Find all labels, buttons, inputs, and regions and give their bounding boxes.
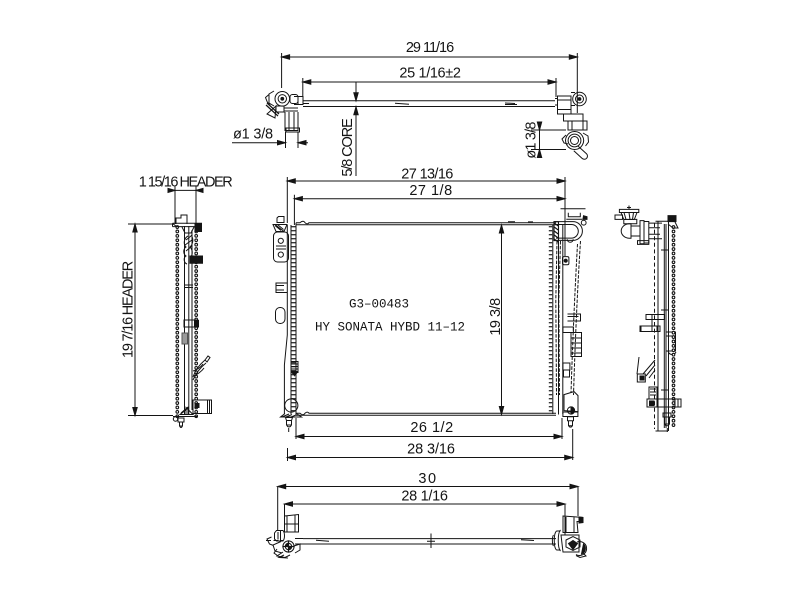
svg-text:29 11/16: 29 11/16	[406, 40, 454, 56]
svg-text:30: 30	[418, 471, 437, 487]
svg-text:25 1/16±2: 25 1/16±2	[399, 66, 460, 82]
svg-text:28 3/16: 28 3/16	[407, 442, 455, 458]
svg-text:HY SONATA HYBD 11–12: HY SONATA HYBD 11–12	[315, 321, 465, 335]
svg-text:27 13/16: 27 13/16	[401, 167, 453, 183]
svg-text:27 1/8: 27 1/8	[409, 183, 452, 199]
svg-text:G3–00483: G3–00483	[349, 298, 409, 312]
svg-text:5/8 CORE: 5/8 CORE	[340, 118, 356, 177]
svg-text:ø1 3/8: ø1 3/8	[233, 127, 273, 143]
svg-text:19 7/16 HEADER: 19 7/16 HEADER	[121, 261, 137, 358]
svg-text:28 1/16: 28 1/16	[401, 489, 448, 505]
svg-text:26 1/2: 26 1/2	[410, 420, 453, 436]
svg-text:ø1 3/8: ø1 3/8	[524, 122, 540, 159]
svg-text:1 15/16 HEADER: 1 15/16 HEADER	[139, 175, 233, 191]
